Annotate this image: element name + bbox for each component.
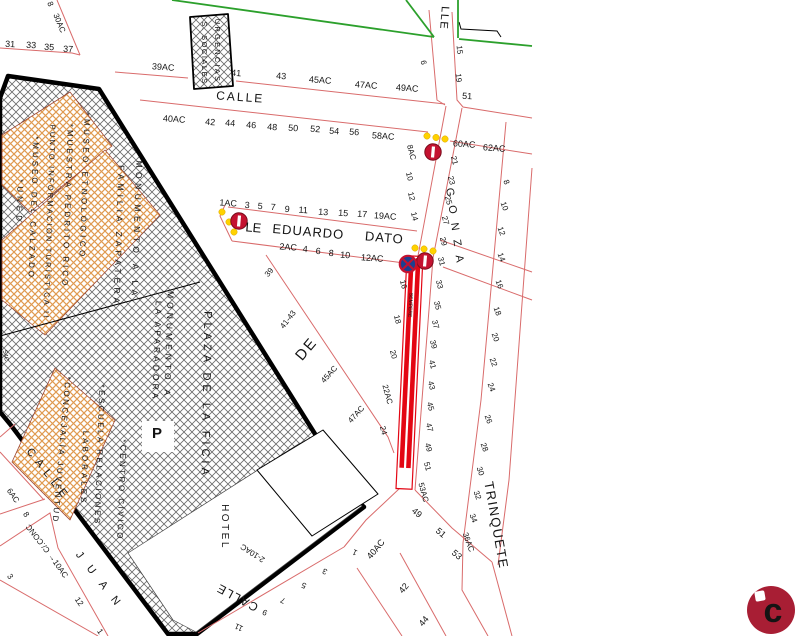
map-label: 8AC [405, 144, 418, 162]
map-label: 9 [261, 607, 269, 617]
map-label: 35 [44, 42, 55, 53]
map-label: DATO [364, 228, 404, 246]
map-label: 62AC [483, 142, 507, 154]
map-label: 8 [501, 179, 511, 187]
map-label: 7 [279, 595, 287, 605]
map-label: 41 [231, 68, 242, 79]
map-label: 17 [357, 209, 368, 220]
signal-dot [421, 246, 427, 252]
map-label: 54 [329, 126, 340, 137]
map-label: 13 [318, 207, 329, 218]
map-label: 15 [455, 45, 465, 55]
map-label: 53AC [416, 482, 430, 504]
map-label: 1AC [219, 197, 238, 208]
map-label: 3 [5, 572, 15, 581]
map-label: 14 [409, 211, 420, 222]
map-label: 5 [300, 580, 308, 590]
map-label: 8 [45, 0, 55, 8]
no-parking-sign [400, 256, 416, 272]
map-label: 18 [392, 314, 403, 325]
map-label: 16 [494, 278, 506, 290]
map-label: 19 [454, 73, 464, 83]
map-label: 34 [468, 512, 480, 524]
map-label: 43 [426, 380, 437, 391]
map-line [459, 22, 501, 37]
map-label: HOTEL [219, 504, 230, 550]
map-label: 28 [479, 441, 491, 453]
map-label: LE [245, 219, 262, 235]
map-label: 44 [417, 614, 431, 628]
map-label: 22 [488, 356, 500, 368]
map-label: 3 [244, 200, 250, 210]
map-label: 60AC [453, 138, 477, 150]
map-label: 6 [315, 246, 321, 256]
map-label: 45 [425, 401, 436, 412]
map-label: S. SOCIALES [200, 21, 209, 84]
map-label: 8 [21, 510, 31, 519]
map-label: 4 [302, 244, 308, 254]
map-label: P [152, 425, 162, 442]
street-line [452, 12, 532, 118]
map-label: 35 [432, 300, 443, 311]
street-line [443, 267, 532, 300]
map-label: 22AC [380, 384, 394, 406]
map-label: 10 [404, 171, 415, 182]
map-label: 11 [233, 621, 245, 633]
map-label: 14 [496, 251, 508, 263]
map-label: 41 [427, 359, 438, 370]
map-label: 7 [270, 202, 276, 212]
ic-logo: c [747, 586, 795, 634]
map-label: 47AC [346, 404, 366, 425]
urgencias-building [190, 14, 233, 89]
map-label: 52 [310, 124, 321, 135]
map-label: 51 [462, 91, 473, 102]
map-label: 24 [378, 425, 389, 436]
map-label: 30AC [51, 12, 67, 34]
map-label: 39 [263, 266, 276, 279]
map-label: 3 [321, 566, 329, 576]
map-label: 6 [419, 60, 429, 66]
map-label: 50 [288, 123, 299, 134]
street-line [0, 580, 98, 636]
map-label: DE [292, 334, 321, 364]
map-label: 45AC [309, 74, 333, 86]
ic-logo-letter: c [764, 592, 783, 630]
street-line [115, 72, 188, 78]
signal-dot [442, 136, 448, 142]
map-label: 45AC [319, 364, 339, 385]
map-label: C/.CONC [24, 522, 52, 554]
map-label: 8 [328, 248, 334, 258]
signal-dot [412, 245, 418, 251]
map-label: 10 [499, 200, 511, 212]
map-label: 12 [73, 595, 86, 608]
map-label: 40AC [163, 113, 187, 125]
map-label: 40AC [365, 537, 387, 561]
signal-dot [433, 134, 439, 140]
map-label: 43 [276, 71, 287, 82]
map-label: 31 [5, 39, 16, 50]
map-label: 51 [434, 526, 448, 540]
map-label: 18 [492, 305, 504, 317]
street-line [357, 568, 402, 636]
map-label: 39AC [152, 61, 176, 73]
no-entry-sign [424, 143, 442, 161]
map-label: →10AC [46, 552, 70, 580]
map-label: 49 [423, 442, 434, 453]
signal-dot [231, 229, 237, 235]
map-label: 15 [338, 208, 349, 219]
map-label: 48 [267, 122, 278, 133]
map-label: 37 [63, 44, 74, 55]
map-label: 58AC [372, 130, 396, 142]
map-label: 12 [406, 191, 417, 202]
map-label: URGENCIAS [213, 19, 222, 83]
map-label: 12AC [361, 252, 385, 264]
map-label: 44 [225, 118, 236, 129]
map-label: 51 [422, 461, 433, 472]
ic-logo-dot [754, 590, 766, 602]
map-label: 10 [340, 250, 351, 261]
map-label: EDUARDO [272, 221, 345, 242]
map-label: 30 [475, 465, 487, 477]
map-label: 47 [424, 422, 435, 433]
map-label: 37 [430, 319, 441, 330]
map-label: CALLE [216, 88, 265, 105]
map-page: 3133353730AC839AC414345AC47AC49ACURGENCI… [0, 0, 800, 636]
street-line [492, 562, 512, 636]
signal-dot [424, 133, 430, 139]
map-label: *UNED [14, 179, 25, 225]
map-label: 41-43 [278, 308, 298, 330]
map-label: 56 [349, 127, 360, 138]
map-label: 11 [298, 205, 308, 216]
signal-dot [430, 248, 436, 254]
map-label: 46 [246, 120, 257, 131]
map-label: 19AC [374, 210, 398, 222]
map-label: 31 [436, 256, 447, 267]
map-label: 42 [397, 581, 411, 595]
map-label: 53 [450, 548, 464, 562]
map-label: 6AC [5, 487, 21, 505]
signal-dot [219, 209, 225, 215]
map-label: 20 [490, 331, 502, 343]
map-label: 32 [472, 489, 484, 501]
map-label: 33 [26, 40, 37, 51]
map-label: 42 [205, 117, 216, 128]
map-label: 1 [351, 547, 359, 557]
boundary-line [459, 39, 532, 46]
map-label: 39 [428, 339, 439, 350]
street-line [463, 122, 506, 543]
map-label: 12 [496, 225, 508, 237]
map-label: 20 [388, 349, 399, 360]
map-label: 9 [284, 204, 290, 214]
map-label: 26 [483, 413, 495, 425]
map-label: 49 [410, 506, 424, 520]
map-label: GONZA [443, 187, 467, 272]
map-label: 49AC [396, 82, 420, 94]
closed-street-bar [396, 256, 423, 489]
map-label: 5 [257, 201, 263, 211]
city-map[interactable]: 3133353730AC839AC414345AC47AC49ACURGENCI… [0, 0, 800, 636]
map-label: 47AC [355, 79, 379, 91]
map-label: 24 [486, 381, 498, 393]
map-label: 29 [438, 236, 449, 247]
map-label: LLE [437, 6, 451, 31]
street-line [418, 106, 446, 256]
map-label: 2AC [279, 241, 298, 252]
street-line [0, 499, 45, 514]
map-label: 33 [434, 279, 445, 290]
street-line [462, 543, 488, 636]
